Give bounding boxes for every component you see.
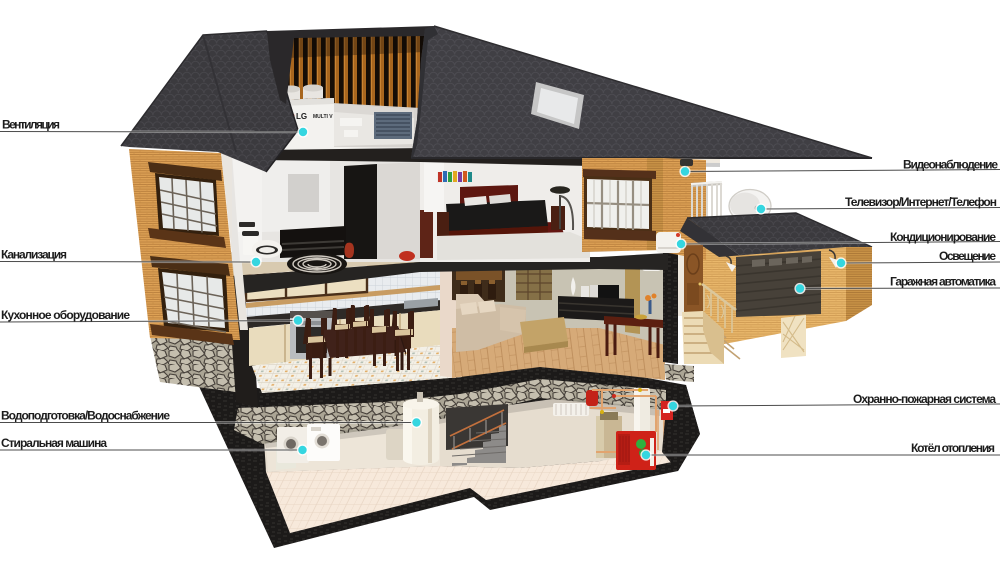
svg-text:LG: LG [296, 112, 307, 121]
svg-text:Видеонаблюдение: Видеонаблюдение [903, 158, 998, 172]
svg-text:Вентиляция: Вентиляция [2, 118, 60, 132]
svg-text:Телевизор/Интернет/Телефон: Телевизор/Интернет/Телефон [845, 195, 997, 209]
svg-text:Кухонное оборудование: Кухонное оборудование [1, 308, 130, 322]
svg-text:Гаражная автоматика: Гаражная автоматика [890, 275, 996, 289]
svg-text:Освещение: Освещение [939, 249, 996, 263]
svg-text:MULTI V: MULTI V [313, 114, 333, 120]
svg-text:Кондиционирование: Кондиционирование [890, 230, 996, 244]
svg-text:Стиральная машина: Стиральная машина [1, 436, 107, 450]
svg-text:Охранно-пожарная система: Охранно-пожарная система [853, 392, 996, 406]
svg-text:Водоподготовка/Водоснабжение: Водоподготовка/Водоснабжение [1, 409, 170, 423]
svg-text:Котёл отопления: Котёл отопления [911, 441, 995, 455]
svg-text:Канализация: Канализация [1, 248, 67, 262]
